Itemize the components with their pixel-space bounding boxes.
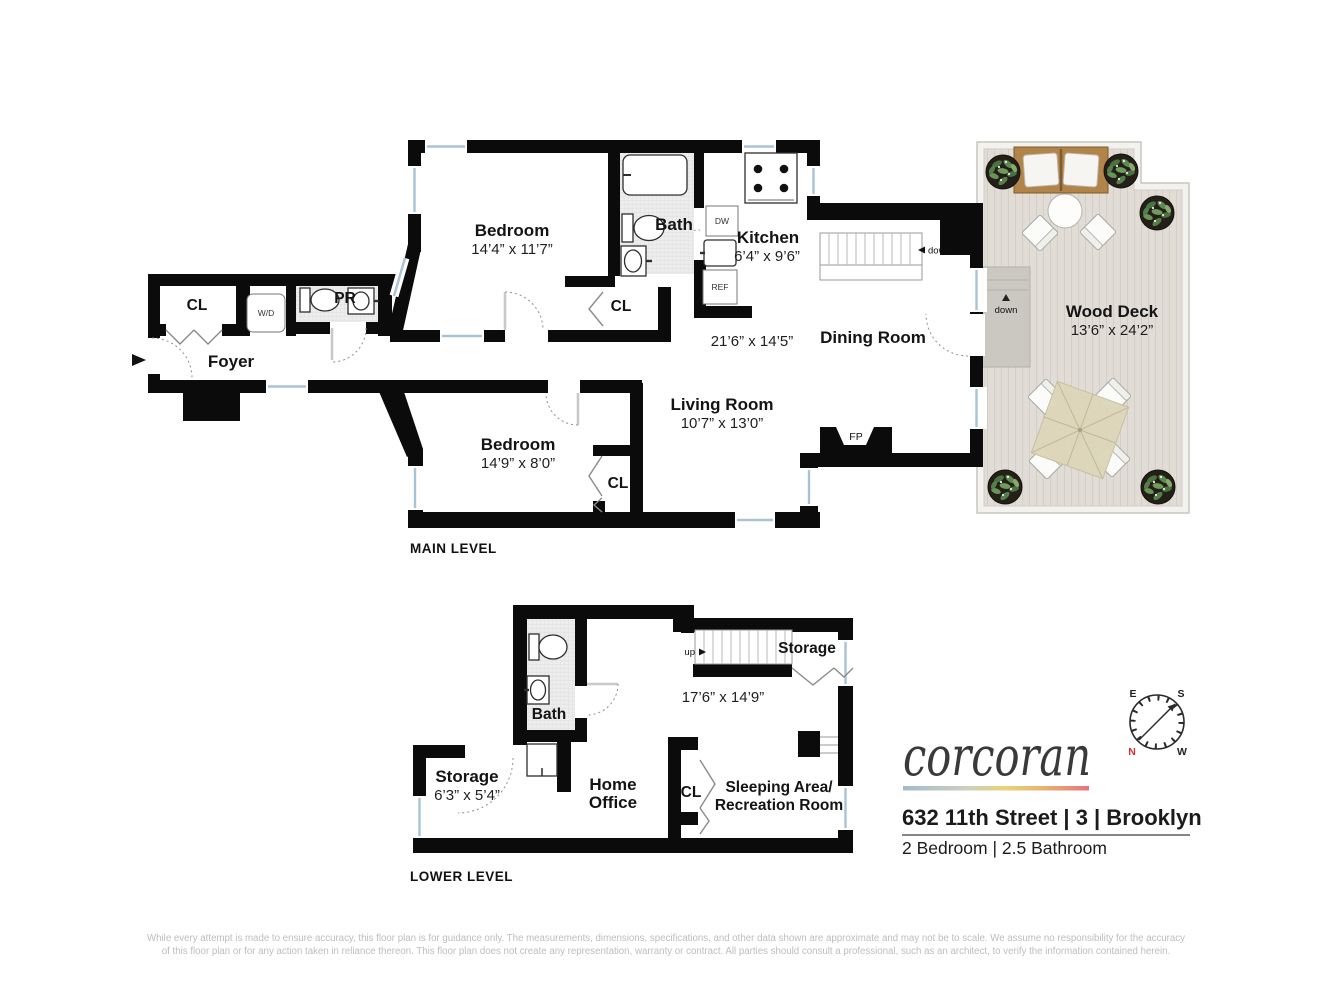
bench-cushion (1063, 153, 1099, 187)
toilet-icon (622, 214, 633, 242)
wood-deck-dims: 13’6” x 24’2” (1071, 322, 1154, 339)
bedroom-bottom-label: Bedroom (481, 435, 556, 454)
disclaimer-line-2: of this floor plan or for any action tak… (162, 946, 1170, 957)
upper-storage-label: Storage (778, 640, 836, 657)
lower-storage-label: Storage (435, 767, 498, 786)
bedroom-top-label: Bedroom (475, 221, 550, 240)
compass-east: E (1129, 688, 1136, 700)
powder-room-label: PR (334, 290, 356, 307)
main-stairs: down (820, 233, 951, 280)
compass-north: N (1128, 746, 1136, 758)
closet-left-label: CL (187, 297, 208, 314)
washer-dryer: W/D (247, 294, 285, 332)
lower-area-dims: 17’6” x 14’9” (682, 689, 765, 706)
corcoran-logo: corcoran (903, 725, 1091, 788)
bench-cushion (1023, 153, 1059, 187)
umbrella-table (1028, 378, 1132, 480)
lower-stairs: up (684, 630, 792, 664)
floor-plan-page: down (0, 0, 1333, 1000)
lower-stairs-up-label: up (684, 647, 695, 658)
foyer-label: Foyer (208, 352, 255, 371)
deck-stairs-down-label: down (995, 305, 1018, 316)
sleeping-area-label-2: Recreation Room (715, 797, 843, 814)
wood-deck: down (977, 142, 1189, 513)
entry-arrow-icon (132, 354, 146, 366)
bedroom-top-dims: 14’4” x 11’7” (471, 241, 552, 258)
closet-bedroom2-label: CL (608, 475, 629, 492)
kitchen-sink-icon (704, 240, 736, 266)
deck-stairs: down (982, 267, 1030, 367)
deck-bench (1014, 147, 1108, 193)
dishwasher-label: DW (715, 216, 729, 226)
listing-summary: 2 Bedroom | 2.5 Bathroom (902, 838, 1107, 858)
compass-south: S (1177, 688, 1184, 700)
disclaimer-line-1: While every attempt is made to ensure ac… (147, 933, 1185, 944)
living-room-dims: 10’7” x 13’0” (681, 415, 764, 432)
deck-table (1048, 194, 1082, 228)
stove-icon (745, 153, 797, 203)
toilet-icon (529, 634, 539, 660)
lower-storage-dims: 6’3” x 5’4” (434, 787, 500, 804)
wood-deck-label: Wood Deck (1066, 302, 1159, 321)
fireplace-label: FP (849, 431, 862, 443)
closet-mid-label: CL (611, 298, 632, 315)
bathtub-icon (623, 155, 687, 195)
lower-closet-label: CL (681, 784, 702, 801)
lower-level-title: LOWER LEVEL (410, 869, 513, 884)
refrigerator-label: REF (712, 282, 729, 292)
main-level-title: MAIN LEVEL (410, 541, 497, 556)
main-stairs-down-label: down (928, 246, 951, 257)
dining-room-label: Dining Room (820, 328, 926, 347)
kitchen-dims: 6’4” x 9’6” (734, 248, 800, 265)
compass-west: W (1177, 746, 1187, 758)
brand-gradient-bar (903, 786, 1089, 791)
lower-bath-label: Bath (532, 706, 566, 723)
branding: corcoran 632 11th Street | 3 | Brooklyn … (902, 725, 1202, 858)
bath-label: Bath (655, 215, 693, 234)
compass-icon: E S N W (1128, 688, 1187, 758)
home-office-label-1: Home (589, 775, 636, 794)
sleeping-area-label-1: Sleeping Area/ (725, 779, 833, 796)
bedroom-bottom-dims: 14’9” x 8’0” (481, 455, 555, 472)
living-room-label: Living Room (671, 395, 774, 414)
floor-plan-canvas: down (0, 0, 1333, 1000)
toilet-icon (300, 288, 310, 312)
open-area-dims: 21’6” x 14’5” (711, 333, 794, 350)
home-office-label-2: Office (589, 793, 637, 812)
washer-dryer-label: W/D (258, 308, 275, 318)
kitchen-label: Kitchen (737, 228, 799, 247)
listing-address: 632 11th Street | 3 | Brooklyn (902, 805, 1202, 830)
